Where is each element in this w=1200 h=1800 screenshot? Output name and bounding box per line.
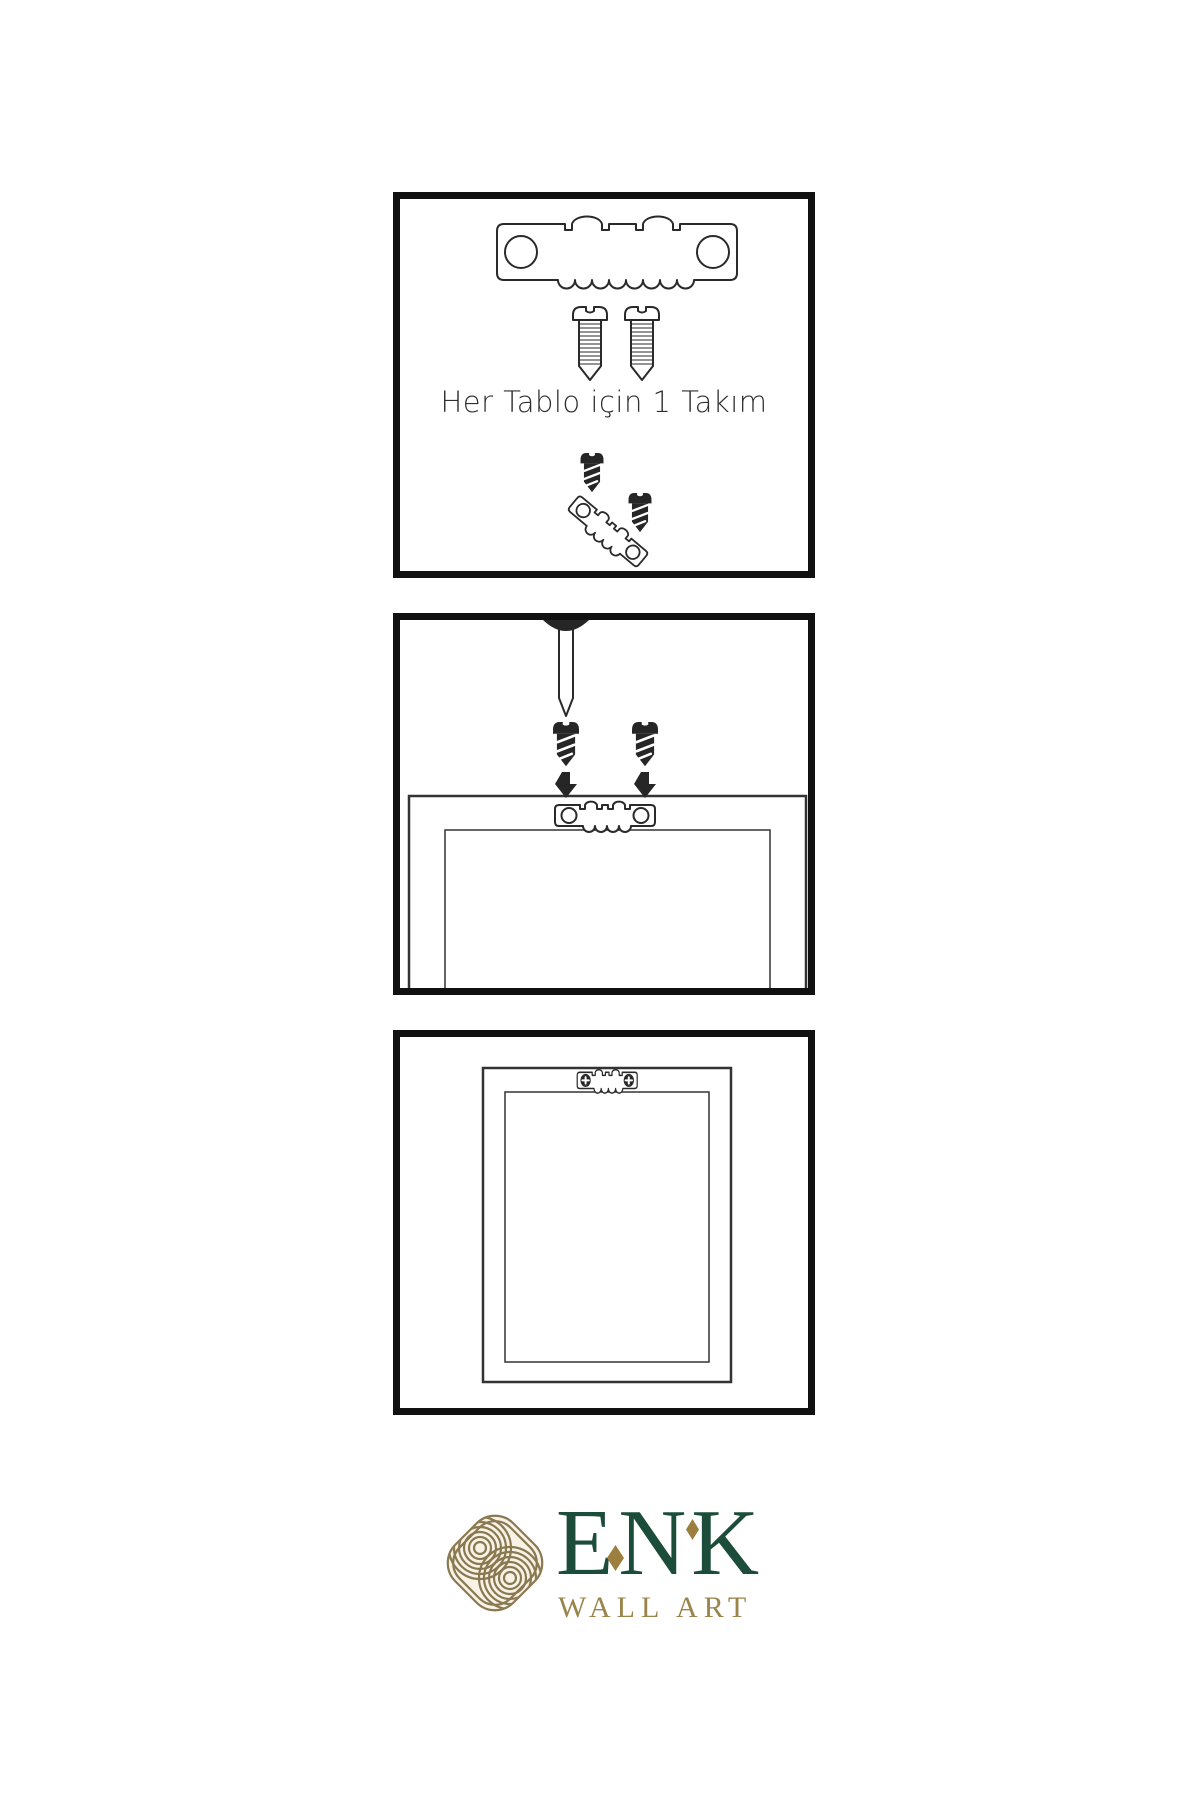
mounted-screw-head-icon [624,1075,634,1085]
screw-dark-icon [632,722,658,766]
nail-icon [559,620,573,716]
arrow-down-icon [555,772,577,798]
screw-dark-icon [629,493,652,532]
step3-panel [393,1030,815,1415]
screw-icon [573,307,607,380]
arrow-down-icon [634,772,656,798]
frame-front-inner-icon [505,1092,709,1362]
step2-panel [393,613,815,995]
screw-dark-icon [553,722,579,766]
step1-panel: Her Tablo için 1 Takım [393,192,815,578]
instruction-sheet: { "page": { "background": "#ffffff" }, "… [0,0,1200,1800]
step3-diagram [400,1037,808,1408]
screw-dark-icon [581,453,604,492]
brand-subtitle: WALL ART [558,1593,752,1623]
logo-emblem-icon [438,1500,552,1626]
hanger-hole-icon [505,236,537,268]
hanger-hole-icon [697,236,729,268]
step2-diagram [400,620,808,988]
mounted-screw-head-icon [581,1075,591,1085]
step1-caption: Her Tablo için 1 Takım [400,385,808,419]
brand-name: ENK [556,1496,764,1590]
frame-back-inner-icon [445,830,770,988]
screw-icon [625,307,659,380]
nail-head-icon [543,620,589,631]
